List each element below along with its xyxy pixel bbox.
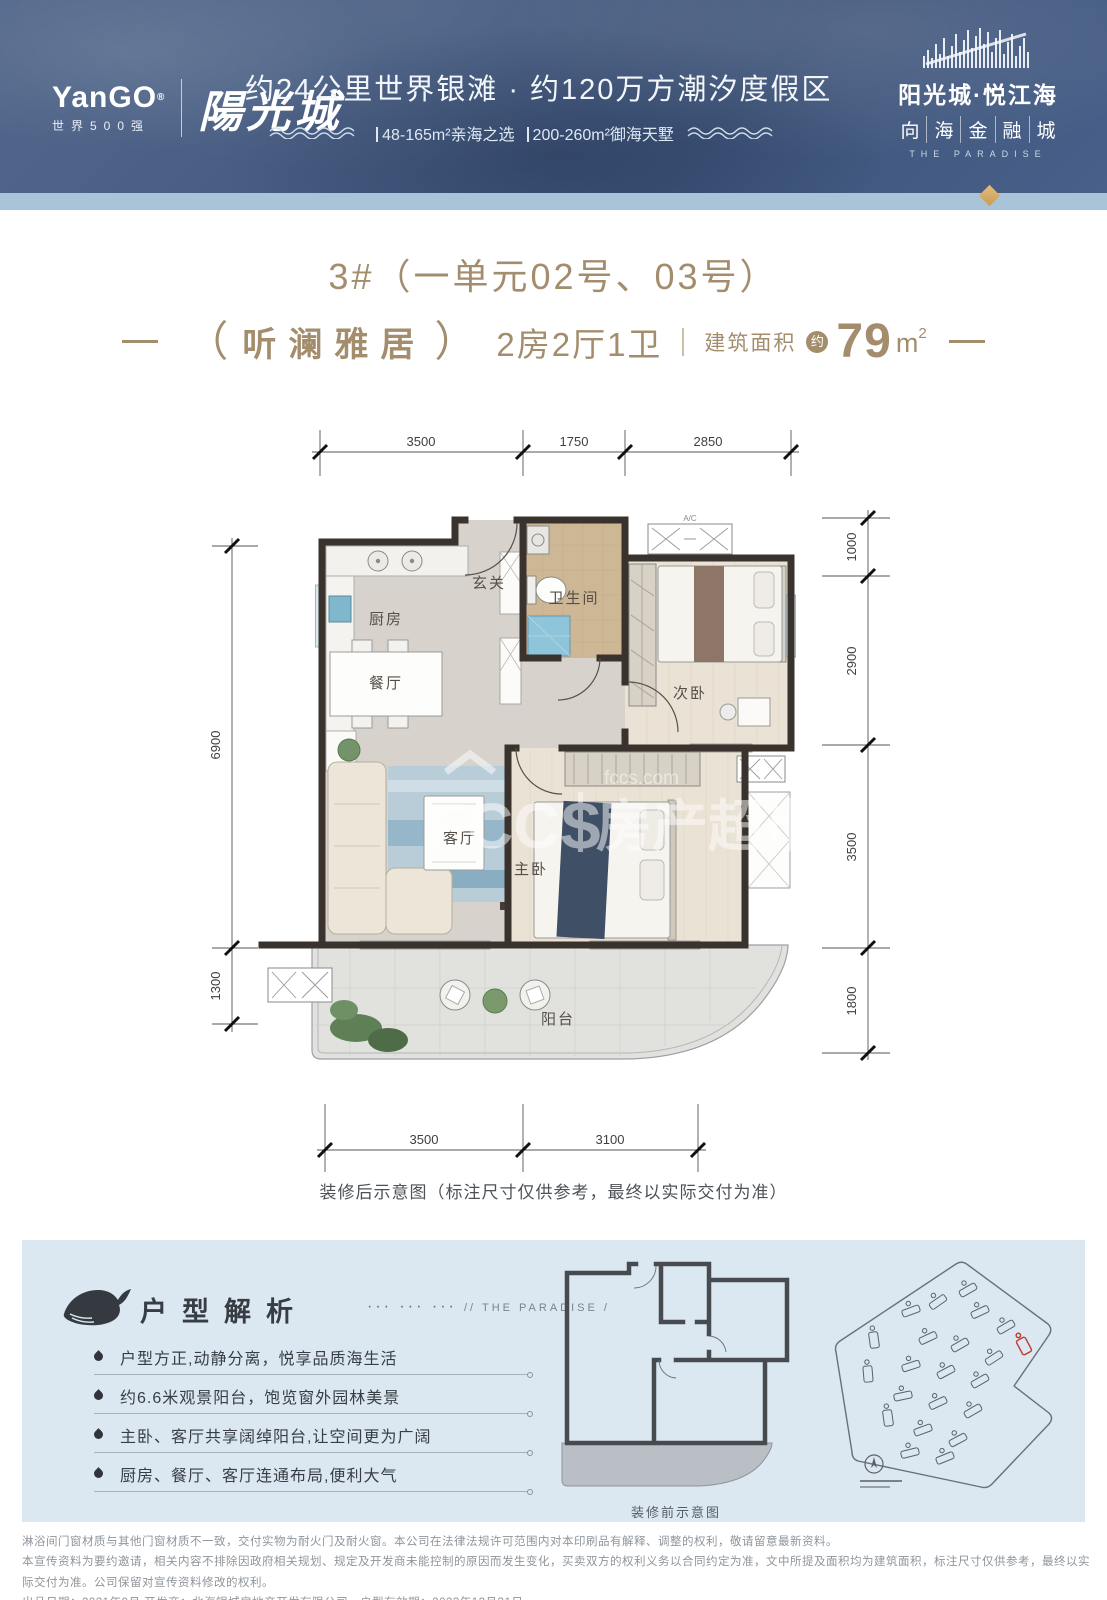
paren-open: （: [186, 319, 228, 365]
corridor-floor: [523, 658, 625, 748]
label-master: 主卧: [514, 861, 548, 878]
disclaimer-line: 本宣传资料为要约邀请，相关内容不排除因政府相关规划、规定及开发商未能控制的原因而…: [22, 1552, 1090, 1593]
registered-mark: ®: [157, 92, 165, 103]
disclaimer-line: 淋浴间门窗材质与其他门窗材质不一致，交付实物为耐火门及耐火窗。本公司在法律法规许…: [22, 1532, 1090, 1552]
house-name: 听澜雅居: [242, 317, 426, 366]
dim-label: 2900: [844, 647, 859, 676]
ac-label: A/C: [683, 514, 697, 523]
drop-icon: [92, 1467, 105, 1480]
dim-label: 1750: [560, 434, 589, 449]
mini-walls: [567, 1264, 787, 1443]
unit-title: 3#（一单元02号、03号）: [0, 248, 1107, 300]
project-english: THE PARADISE: [873, 149, 1083, 159]
dimension-bottom: 3500 3100: [317, 1104, 706, 1172]
watermark-brand: FCCS: [428, 790, 602, 862]
dim-label: 3100: [596, 1132, 625, 1147]
tick-bar: [376, 127, 378, 142]
watermark-divider: [578, 792, 583, 852]
dimension-right: 1000 2900 3500 1800: [822, 510, 890, 1060]
wave-icon: [686, 127, 782, 139]
wave-icon: [268, 127, 364, 139]
poster-page: YanGO® 世界500强 陽光城 约24公里世界银滩 · 约120万方潮汐度假…: [0, 0, 1107, 1600]
headline: 约24公里世界银滩 · 约120万方潮汐度假区: [245, 66, 805, 108]
barcode-logo-icon: [918, 28, 1038, 68]
line-end-dot: [527, 1450, 533, 1456]
analysis-panel: 户型解析 ··· ··· ··· // THE PARADISE / 户型方正,…: [22, 1240, 1085, 1522]
line-end-dot: [527, 1489, 533, 1495]
mini-floor-plan: [550, 1256, 802, 1500]
label-kitchen: 厨房: [369, 611, 403, 628]
plan-caption: 装修后示意图（标注尺寸仅供参考，最终以实际交付为准）: [0, 1178, 1107, 1203]
analysis-title: 户型解析: [140, 1290, 308, 1329]
mini-balcony: [562, 1443, 772, 1486]
vertical-divider: [682, 328, 684, 356]
area-value: 79: [836, 314, 891, 369]
dim-label: 2850: [694, 434, 723, 449]
label-bed2: 次卧: [673, 685, 707, 702]
disclaimer-line: 出品日期：2021年9月 开发商：北海银城房地产开发有限公司。户型有效期：202…: [22, 1593, 1090, 1600]
layout-spec: 2房2厅1卫: [496, 318, 662, 366]
point-divider: [94, 1413, 530, 1414]
point-divider: [94, 1452, 530, 1453]
site-buildings: [862, 1277, 1015, 1465]
dim-label: 6900: [208, 731, 223, 760]
dimension-left: 6900 1300: [208, 538, 258, 1032]
mini-plan-caption: 装修前示意图: [550, 1502, 802, 1521]
watermark-cn: 房产超市: [596, 795, 820, 858]
header-strip: [0, 193, 1107, 210]
label-balcony: 阳台: [541, 1011, 575, 1028]
tick-bar: [527, 127, 529, 142]
point-divider: [94, 1374, 530, 1375]
selling-point: 厨房、餐厅、客厅连通布局,便利大气: [94, 1463, 530, 1484]
line-end-dot: [527, 1411, 533, 1417]
sub-item-2: 200-260m²御海天墅: [527, 121, 674, 145]
sub-headline: 48-165m²亲海之选 200-260m²御海天墅: [245, 121, 805, 145]
dim-label: 3500: [844, 833, 859, 862]
logo-tagline: 世界500强: [52, 117, 165, 134]
label-dining: 餐厅: [369, 675, 403, 692]
dim-label: 1000: [844, 533, 859, 562]
project-name: 阳光城·悦江海: [873, 76, 1083, 110]
selling-points: 户型方正,动静分离，悦享品质海生活 约6.6米观景阳台，饱览窗外园林美景 主卧、…: [94, 1346, 530, 1502]
yango-logo: YanGO® 世界500强: [52, 83, 165, 134]
sub-item-1: 48-165m²亲海之选: [376, 121, 514, 145]
drop-icon: [92, 1350, 105, 1363]
site-plan: [808, 1248, 1078, 1506]
line-end-dot: [527, 1372, 533, 1378]
dim-label: 1800: [844, 987, 859, 1016]
selling-point: 户型方正,动静分离，悦享品质海生活: [94, 1346, 530, 1367]
project-subname: 向海金融城: [873, 116, 1083, 143]
label-bath: 卫生间: [548, 590, 599, 607]
site-boundary: [836, 1262, 1052, 1487]
dim-label: 1300: [208, 972, 223, 1001]
disclaimer: 淋浴间门窗材质与其他门窗材质不一致，交付实物为耐火门及耐火窗。本公司在法律法规许…: [22, 1532, 1090, 1600]
dimension-top: 3500 1750 2850: [312, 430, 799, 476]
dim-label: 3500: [410, 1132, 439, 1147]
floor-plan: A/C 玄关 厨房 卫生间 次卧 餐厅 客厅 主卧 阳台 FC: [0, 400, 1107, 1210]
drop-icon: [92, 1428, 105, 1441]
compass-icon: [860, 1455, 902, 1488]
label-foyer: 玄关: [472, 575, 506, 592]
area-unit: m2: [896, 325, 927, 359]
selling-point: 主卧、客厅共享阔绰阳台,让空间更为广阔: [94, 1424, 530, 1445]
project-logo: 阳光城·悦江海 向海金融城 THE PARADISE: [873, 28, 1083, 159]
unit-subtitle: （ 听澜雅居 ） 2房2厅1卫 建筑面积 约 79 m2: [0, 314, 1107, 369]
logo-text: YanGO: [52, 81, 157, 114]
dash-left: [122, 340, 158, 343]
point-divider: [94, 1491, 530, 1492]
dots-decoration: ··· ··· ···: [367, 1298, 457, 1316]
dash-right: [949, 340, 985, 343]
area-label: 建筑面积: [704, 327, 796, 357]
header-banner: YanGO® 世界500强 陽光城 约24公里世界银滩 · 约120万方潮汐度假…: [0, 0, 1107, 193]
watermark-site: fccs.com: [604, 768, 679, 789]
approx-circle: 约: [806, 331, 828, 353]
header-center: 约24公里世界银滩 · 约120万方潮汐度假区 48-165m²亲海之选 200…: [245, 66, 805, 145]
paren-close: ）: [434, 319, 476, 365]
site-highlighted-building: [1013, 1331, 1032, 1355]
whale-icon: [58, 1280, 132, 1336]
dim-label: 3500: [407, 434, 436, 449]
logo-divider: [181, 79, 182, 137]
drop-icon: [92, 1389, 105, 1402]
selling-point: 约6.6米观景阳台，饱览窗外园林美景: [94, 1385, 530, 1406]
